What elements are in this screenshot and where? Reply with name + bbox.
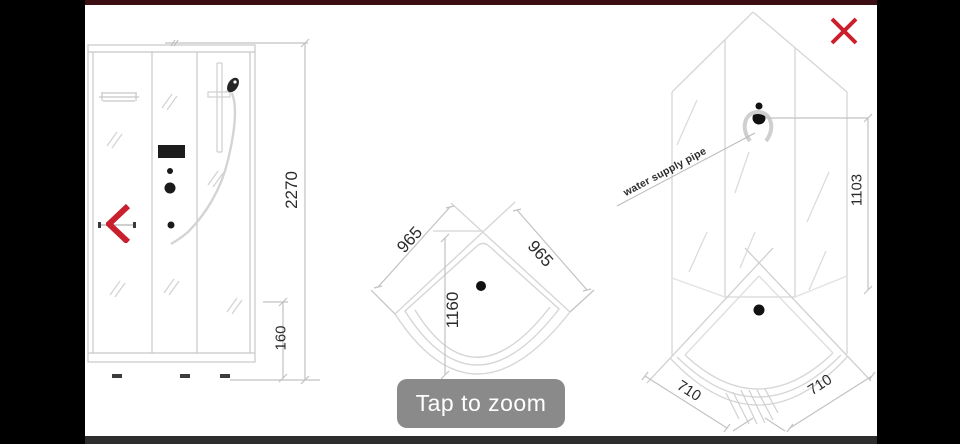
previous-image-button[interactable] bbox=[106, 203, 130, 243]
letterbox-right bbox=[877, 0, 960, 444]
front-view-height-label: 2270 bbox=[282, 171, 302, 209]
shower-cabin-technical-drawing bbox=[85, 0, 877, 444]
letterbox-left bbox=[0, 0, 85, 444]
front-view-tray-height-label: 160 bbox=[273, 325, 290, 350]
close-button[interactable] bbox=[829, 16, 859, 46]
tap-to-zoom-button[interactable]: Tap to zoom bbox=[397, 379, 565, 428]
product-diagram-image[interactable]: 2270 160 965 965 1160 water supply pipe … bbox=[85, 0, 877, 444]
image-viewer: 2270 160 965 965 1160 water supply pipe … bbox=[0, 0, 960, 444]
top-view-width-label: 1160 bbox=[443, 292, 463, 329]
page-footer-strip bbox=[85, 436, 877, 444]
corner-view-height-label: 1103 bbox=[849, 174, 866, 206]
close-icon bbox=[829, 16, 859, 46]
top-view-drawing bbox=[371, 202, 594, 379]
corner-view-drawing bbox=[617, 12, 875, 432]
back-chevron-icon bbox=[106, 203, 130, 243]
